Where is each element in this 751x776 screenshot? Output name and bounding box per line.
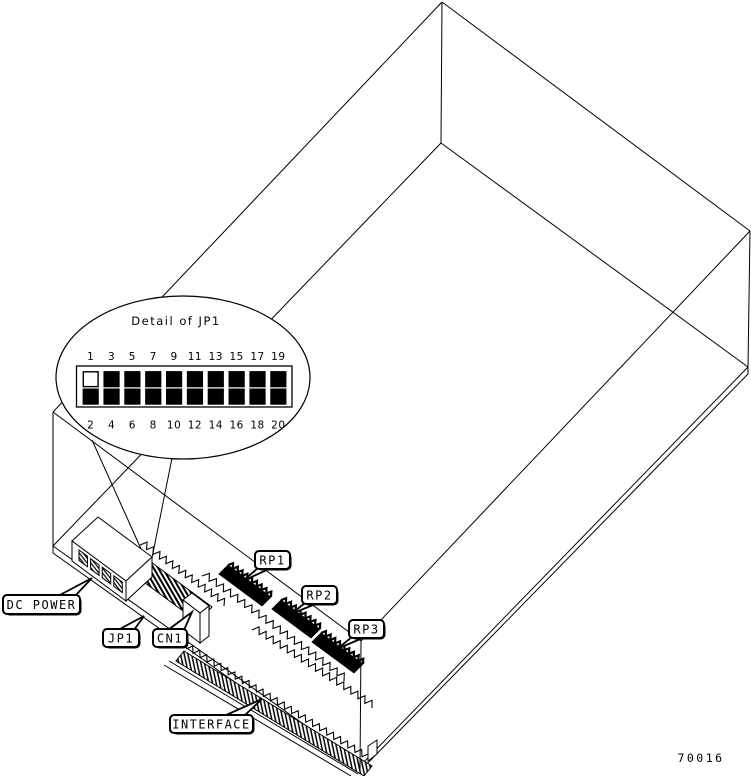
pin-number-bottom: 14 <box>209 420 223 432</box>
svg-text:RP2: RP2 <box>306 589 332 603</box>
detail-leader-line <box>152 458 172 558</box>
jp1-pin-jumpered <box>229 389 244 404</box>
pin-number-top: 5 <box>129 351 136 363</box>
svg-text:RP1: RP1 <box>259 554 285 568</box>
pin-number-top: 15 <box>229 351 243 363</box>
label-jp1-pointer <box>118 616 144 630</box>
jp1-pin-jumpered <box>104 389 119 404</box>
pin-number-top: 11 <box>188 351 202 363</box>
pin-number-top: 7 <box>150 351 157 363</box>
label-cn1: CN1 <box>153 612 192 649</box>
jp1-pin-jumpered <box>83 389 98 404</box>
pin-number-bottom: 6 <box>129 420 136 432</box>
svg-text:DC POWER: DC POWER <box>7 598 77 612</box>
pin-number-bottom: 16 <box>229 420 243 432</box>
pin-number-top: 19 <box>271 351 285 363</box>
label-interface: INTERFACE <box>170 699 262 735</box>
detail-title: Detail of JP1 <box>131 314 220 328</box>
jp1-pin-jumpered <box>167 372 182 387</box>
jp1-pin-jumpered <box>250 372 265 387</box>
interface-end-cap <box>368 740 377 761</box>
dc-power-connector <box>72 517 152 601</box>
svg-text:JP1: JP1 <box>108 632 134 646</box>
jp1-pin-open <box>83 372 98 387</box>
figure-number: 70016 <box>677 751 724 765</box>
pin-number-bottom: 4 <box>108 420 115 432</box>
label-dc-power-pointer <box>58 578 92 596</box>
label-dc-power: DC POWER <box>3 578 92 616</box>
jp1-pin-jumpered <box>271 372 286 387</box>
svg-text:RP3: RP3 <box>353 623 379 637</box>
pin-number-bottom: 18 <box>250 420 264 432</box>
jp1-pin-jumpered <box>229 372 244 387</box>
pin-number-top: 3 <box>108 351 115 363</box>
label-rp2: RP2 <box>291 586 339 614</box>
label-jp1: JP1 <box>103 616 144 649</box>
figure-page: Detail of JP1 13579111315171924681012141… <box>0 0 751 776</box>
pin-number-bottom: 12 <box>188 420 202 432</box>
pin-number-bottom: 8 <box>150 420 157 432</box>
pin-number-top: 1 <box>87 351 94 363</box>
jp1-pin-jumpered <box>146 372 161 387</box>
pin-number-top: 17 <box>250 351 264 363</box>
pin-number-bottom: 2 <box>87 420 94 432</box>
label-rp1: RP1 <box>243 551 292 581</box>
jp1-pin-jumpered <box>167 389 182 404</box>
svg-text:CN1: CN1 <box>157 632 183 646</box>
jp1-pin-jumpered <box>250 389 265 404</box>
jp1-pin-jumpered <box>188 372 203 387</box>
svg-text:INTERFACE: INTERFACE <box>172 718 251 732</box>
jp1-pin-jumpered <box>125 389 140 404</box>
jp1-pin-jumpered <box>146 389 161 404</box>
jp1-pin-jumpered <box>125 372 140 387</box>
jp1-pin-jumpered <box>188 389 203 404</box>
pin-number-bottom: 10 <box>167 420 181 432</box>
jp1-pin-jumpered <box>271 389 286 404</box>
jp1-pin-jumpered <box>208 389 223 404</box>
jp1-pin-jumpered <box>104 372 119 387</box>
pin-number-bottom: 20 <box>271 420 285 432</box>
isometric-drive-drawing: Detail of JP1 13579111315171924681012141… <box>0 0 751 776</box>
pin-number-top: 9 <box>171 351 178 363</box>
pin-number-top: 13 <box>209 351 223 363</box>
jp1-pin-jumpered <box>208 372 223 387</box>
